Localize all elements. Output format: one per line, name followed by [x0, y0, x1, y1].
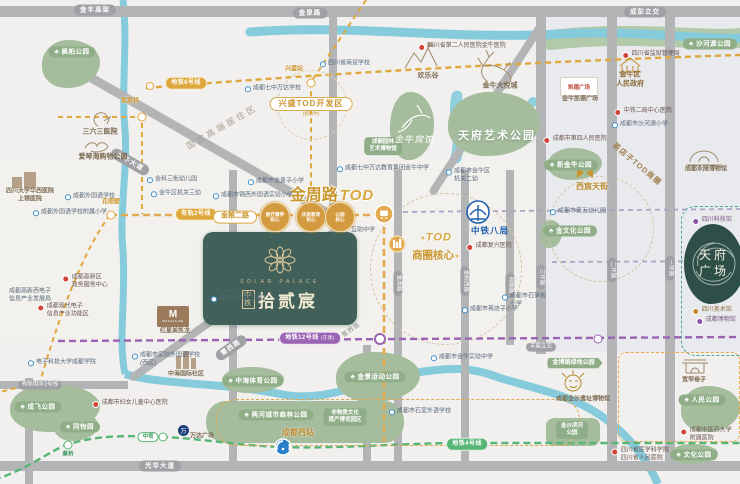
station-dot	[146, 82, 154, 90]
red-marker-icon	[418, 44, 425, 51]
red-marker-icon	[37, 305, 44, 312]
landmark-label: 万达广场	[190, 433, 214, 441]
station-dot-line12	[594, 335, 603, 344]
tod-core-line2: 商圈核心	[412, 249, 454, 261]
jinsha-mask-icon	[562, 370, 584, 391]
government-building-icon	[619, 58, 641, 72]
xingsheng-tod-note: (规划中)	[303, 111, 320, 117]
poi-label: 成都市第五幼儿园	[550, 208, 606, 216]
park-label: 金博路绿地公园	[547, 358, 602, 369]
landmark-label: 西宸天街	[576, 182, 608, 192]
blue-marker-icon	[431, 355, 437, 361]
poi-label: 四川美术馆	[692, 307, 732, 315]
poi-label: 成都外国语学校	[65, 193, 115, 201]
crec8-logo-icon	[467, 201, 489, 223]
tianfu-square-blob: 天府 广场	[684, 224, 740, 304]
park-blob-renmin	[681, 386, 740, 432]
sanliusan-hospital-icon	[94, 113, 110, 126]
park-label: 非物质文化遗产博览园区	[323, 408, 366, 426]
tree-icon: ♣	[228, 377, 235, 384]
poi-label: 中铁二局中心医院	[614, 108, 672, 116]
poi-label: 金牛区机关三幼	[151, 190, 201, 198]
zone-label: 茶店子TOD商圈	[611, 141, 664, 188]
blue-marker-icon	[462, 307, 468, 313]
poi-label: 成都市金贵子小学	[248, 178, 304, 186]
poi-label: 成都复兴医院	[466, 243, 512, 251]
poi-label: 成都市金牛实验中学	[431, 354, 493, 362]
aegean-mall-icon	[85, 143, 108, 152]
station-label: 兴盛站	[285, 66, 303, 74]
purple-marker-icon	[692, 218, 699, 225]
capitaland-mall-box: 凯德广场	[560, 77, 598, 96]
road-label: 光华大道	[139, 460, 181, 471]
xingsheng-tod-badge: 兴盛TOD开发区	[270, 97, 353, 111]
poi-label: 成都市金牛区机关二幼	[446, 169, 490, 184]
landmark-label: 三六三医院	[83, 129, 118, 138]
poi-label: 成都现代电子信息产业功能区	[37, 304, 89, 319]
road-label: 金周路	[394, 271, 403, 296]
landmark-label: 欢乐谷	[418, 73, 439, 82]
zone-label: 国宾高端居住区	[184, 102, 259, 151]
red-marker-icon	[680, 429, 687, 436]
park-label: ♣ 金文化公园	[543, 225, 597, 236]
tod-core-circle: 医疗康养核心	[260, 202, 290, 232]
station-dot-line4	[64, 441, 73, 450]
tree-icon: ♣	[550, 161, 557, 168]
faint-circle-tod	[370, 193, 522, 345]
metro-line-pill: 地铁12号线 (在建)	[279, 332, 341, 345]
poi-label: 四川省医学科学院四川省人民医院	[611, 448, 669, 463]
blue-marker-icon	[33, 210, 39, 216]
blue-marker-icon	[612, 122, 618, 128]
project-flower-logo	[263, 245, 297, 275]
tree-icon: ♣	[244, 411, 251, 418]
blue-marker-icon	[502, 295, 508, 301]
poi-label: 成都七中万达学校	[245, 85, 301, 93]
park-label: ♣ 沙河源公园	[683, 38, 737, 49]
metro-line-pill: 地铁6号线	[165, 77, 207, 90]
park-label: ♣ 文化公园	[670, 449, 717, 460]
red-marker-icon	[543, 137, 550, 144]
landmark-label: 中海国际社区	[168, 371, 204, 379]
blue-marker-icon	[211, 296, 217, 302]
road-jinke-west	[461, 170, 469, 465]
blue-marker-icon	[151, 191, 157, 197]
poi-label: 四川省第二人民医院金牛医院	[418, 43, 506, 51]
blue-marker-icon	[65, 194, 71, 200]
tod-core-line1: TOD	[426, 231, 452, 243]
red-marker-icon	[466, 244, 473, 251]
tree-icon: ♣	[676, 451, 683, 458]
tianfu-square-line1: 天府	[699, 248, 729, 264]
sparkle-icon: ✦	[454, 253, 460, 260]
poi-label: 成都七中万达教育集团金牛中学	[337, 165, 429, 173]
tree-icon: ♣	[350, 373, 357, 380]
poi-label: 成都市锦西外国语实验小学	[213, 192, 293, 200]
red-marker-icon	[614, 109, 621, 116]
metro-line-pill: 地铁4号线	[446, 438, 488, 451]
red-marker-icon	[611, 449, 618, 456]
poi-label: 四川省监狱管理局	[622, 51, 680, 59]
red-marker-icon	[92, 401, 99, 408]
road-first-ring	[665, 14, 675, 464]
station-label: 中坝	[137, 432, 158, 442]
blue-marker-icon	[132, 354, 138, 360]
landmark-label: 红星美凯龙	[160, 328, 190, 336]
poi-label: 金科三街幼儿园	[147, 176, 197, 184]
poi-label: 成都市实验外国语学校(西区)	[132, 353, 200, 368]
poi-label: 电子科技大学成都学院	[28, 359, 96, 367]
station-label: 蔡桥	[62, 452, 73, 459]
crec8-label: 中铁八局	[471, 226, 509, 237]
poi-label: 成都外国语学校附属小学	[33, 209, 107, 217]
road-tonghe	[506, 170, 514, 345]
road-label: 金泉路	[293, 7, 328, 18]
station-dot-line12	[374, 333, 386, 345]
station-dot	[107, 211, 116, 220]
park-label: ♣ 人民公园	[678, 394, 725, 405]
park-label: ♣ 新金牛公园	[544, 159, 598, 170]
poi-label: 成都市石笋街小学	[502, 294, 546, 309]
landmark-label: 成都西站	[282, 428, 314, 438]
landmark-label: 爱琴海购物公园	[79, 154, 128, 163]
metro-line-pill: 有轨2号线	[175, 208, 217, 221]
tree-icon: ♣	[689, 40, 696, 47]
poi-label: 成都市妇女儿童中心医院	[92, 400, 168, 408]
park-label: ♣ 金景运动公园	[344, 371, 405, 382]
poi-label: 成都高新区政务服务中心	[62, 275, 108, 290]
red-marker-icon	[62, 276, 69, 283]
landmark-label: 成都金沙遗址博物馆	[556, 396, 610, 404]
park-label: ♣ 两河城市森林公园	[238, 409, 313, 420]
blue-marker-icon	[320, 61, 326, 67]
hospital-building-icon	[12, 172, 36, 188]
landmark-label: 成都永陵博物馆	[685, 166, 727, 174]
poi-label: 茶店子小学(北区)	[211, 295, 265, 303]
landmark-label: 金牛凯德广场	[562, 96, 598, 104]
gold-marker-icon	[692, 308, 699, 315]
road-label: 有轨电车2号线	[18, 381, 62, 390]
west-river	[122, 0, 126, 374]
station-dot-line4	[159, 433, 168, 442]
blue-marker-icon	[389, 409, 395, 415]
tod-core-label: ✦TOD 商圈核心✦	[412, 227, 460, 262]
poi-label: 成都市第四人民医院	[543, 136, 607, 144]
park-blob-tianfu-art-east	[448, 92, 540, 156]
tree-icon: ♣	[54, 48, 61, 55]
red-marker-icon	[622, 52, 629, 59]
landmark-label: 金牛大悦城	[483, 83, 518, 92]
tree-icon: ♣	[549, 227, 556, 234]
tree-icon: ♣	[20, 403, 27, 410]
blue-marker-icon	[213, 193, 219, 199]
poi-label: 成都高新西电子信息产业发展局	[9, 289, 51, 304]
tod-core-circle: 优质教育核心	[296, 202, 326, 232]
station-dot	[138, 113, 147, 122]
tram-station-icon	[375, 205, 393, 223]
station-label: 金粮二路	[213, 211, 257, 224]
station-label: 侯家桥	[121, 98, 139, 106]
poi-label: 互助中学	[351, 227, 375, 235]
blue-marker-icon	[28, 360, 34, 366]
tree-icon: ♣	[66, 423, 73, 430]
park-label: ♣ 成飞公园	[14, 401, 61, 412]
road-label: 羊犀立交	[526, 343, 556, 352]
wanda-logo: 万	[178, 425, 189, 436]
park-label: 金沙滨河公园	[556, 421, 588, 439]
blue-marker-icon	[147, 177, 153, 183]
location-map: 凯德广场 M MACALLINE 万 SOLAR PALACE 中铁 拾贰宸	[0, 0, 740, 484]
macalline-logo: M MACALLINE	[157, 306, 189, 327]
road-label: 二环路	[608, 258, 617, 283]
blue-marker-icon	[337, 166, 343, 172]
park-label: ♣ 枫桕公园	[48, 46, 95, 57]
road-label: 成彭立交	[624, 6, 666, 17]
landmark-label: 四川大学华西医院上锦医院	[6, 189, 54, 204]
project-name-cn: 拾贰宸	[258, 287, 318, 312]
road-label: 金科西路	[461, 266, 470, 296]
road-label: 金丰高架	[74, 4, 116, 15]
road-label: 一环路	[666, 256, 675, 281]
purple-marker-icon	[696, 318, 703, 325]
poi-label: 成都中医药大学附属医院	[680, 428, 732, 443]
blue-marker-icon	[550, 209, 556, 215]
poi-label: 成都博物馆	[696, 317, 736, 325]
park-label: ♣ 同怡园	[60, 421, 100, 432]
tree-icon: ♣	[684, 396, 691, 403]
project-block-shierchen: SOLAR PALACE 中铁 拾贰宸	[203, 232, 357, 325]
poi-label: 成都市石室外语学校	[389, 408, 451, 416]
park-label: 天府艺术公园	[458, 130, 536, 144]
road-label: 三环路	[537, 265, 546, 290]
blue-marker-icon	[248, 179, 254, 185]
poi-label: 四川科技馆	[692, 217, 732, 225]
project-name-en: SOLAR PALACE	[240, 279, 320, 285]
macalline-sub: MACALLINE	[162, 320, 184, 323]
landmark-label: 金牛区人民政府	[616, 71, 644, 89]
poi-label: 成都市沙河源小学	[612, 121, 668, 129]
kuanzhai-alley-gate-icon	[682, 360, 708, 373]
landmark-label: 宽窄巷子	[682, 377, 706, 385]
yongling-museum-icon	[686, 151, 722, 165]
blue-marker-icon	[446, 170, 452, 176]
park-label: 金牛宾馆	[394, 134, 434, 145]
poi-label: 四川省商贸学校	[320, 60, 370, 68]
tianfu-square-line2: 广场	[699, 264, 729, 280]
blue-marker-icon	[245, 86, 251, 92]
metro-line-6	[146, 55, 740, 88]
station-dot	[307, 79, 316, 88]
park-label: ♣ 中海体育公园	[222, 375, 283, 386]
